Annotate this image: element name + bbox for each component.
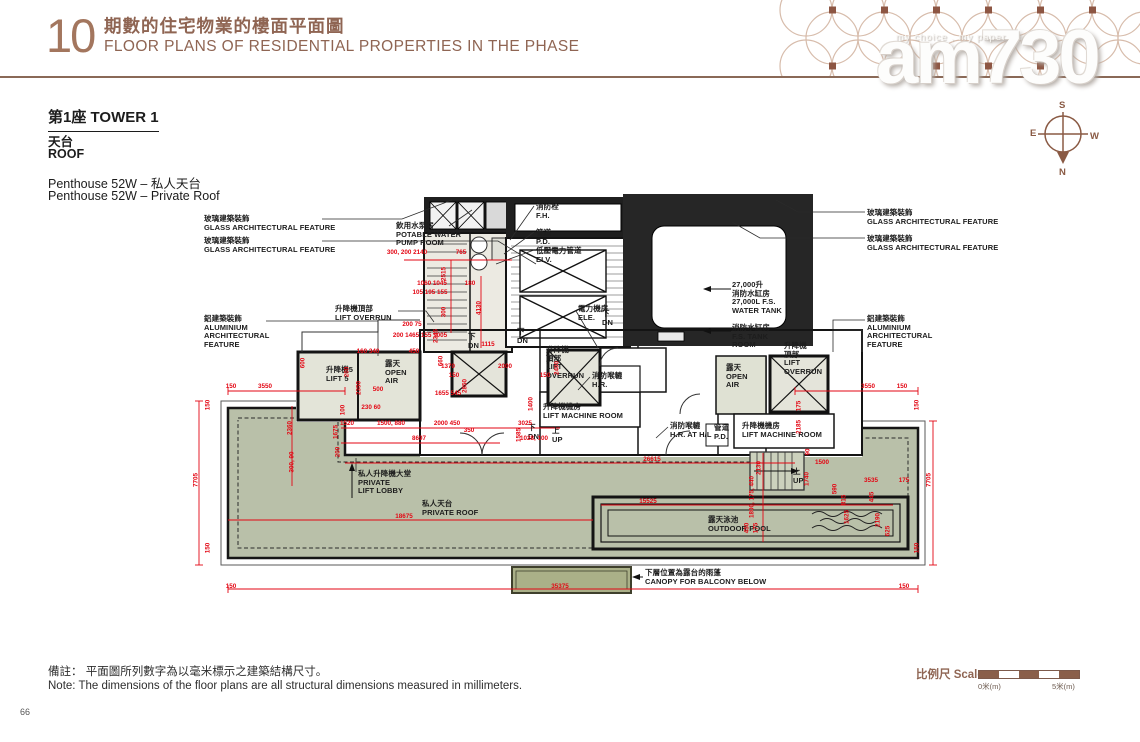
scale-segment	[979, 671, 999, 678]
page-number: 66	[20, 707, 30, 717]
scale-max: 5米(m)	[1052, 681, 1075, 692]
scale-segment	[1019, 671, 1039, 678]
scale-segment	[999, 671, 1019, 678]
scale-segment	[1039, 671, 1059, 678]
floor-plan-drawing	[0, 0, 1140, 742]
note-en: Note: The dimensions of the floor plans …	[48, 680, 522, 692]
scale-min: 0米(m)	[978, 681, 1001, 692]
brochure-page: 10 期數的住宅物業的樓面平面圖 FLOOR PLANS OF RESIDENT…	[0, 0, 1140, 742]
note-zh: 備註： 平面圖所列數字為以毫米標示之建築結構尺寸。	[48, 663, 327, 679]
scale-bar	[978, 670, 1080, 679]
scale-label: 比例尺 Scale	[916, 666, 984, 682]
scale-segment	[1059, 671, 1079, 678]
scale-label-zh: 比例尺	[916, 669, 951, 681]
